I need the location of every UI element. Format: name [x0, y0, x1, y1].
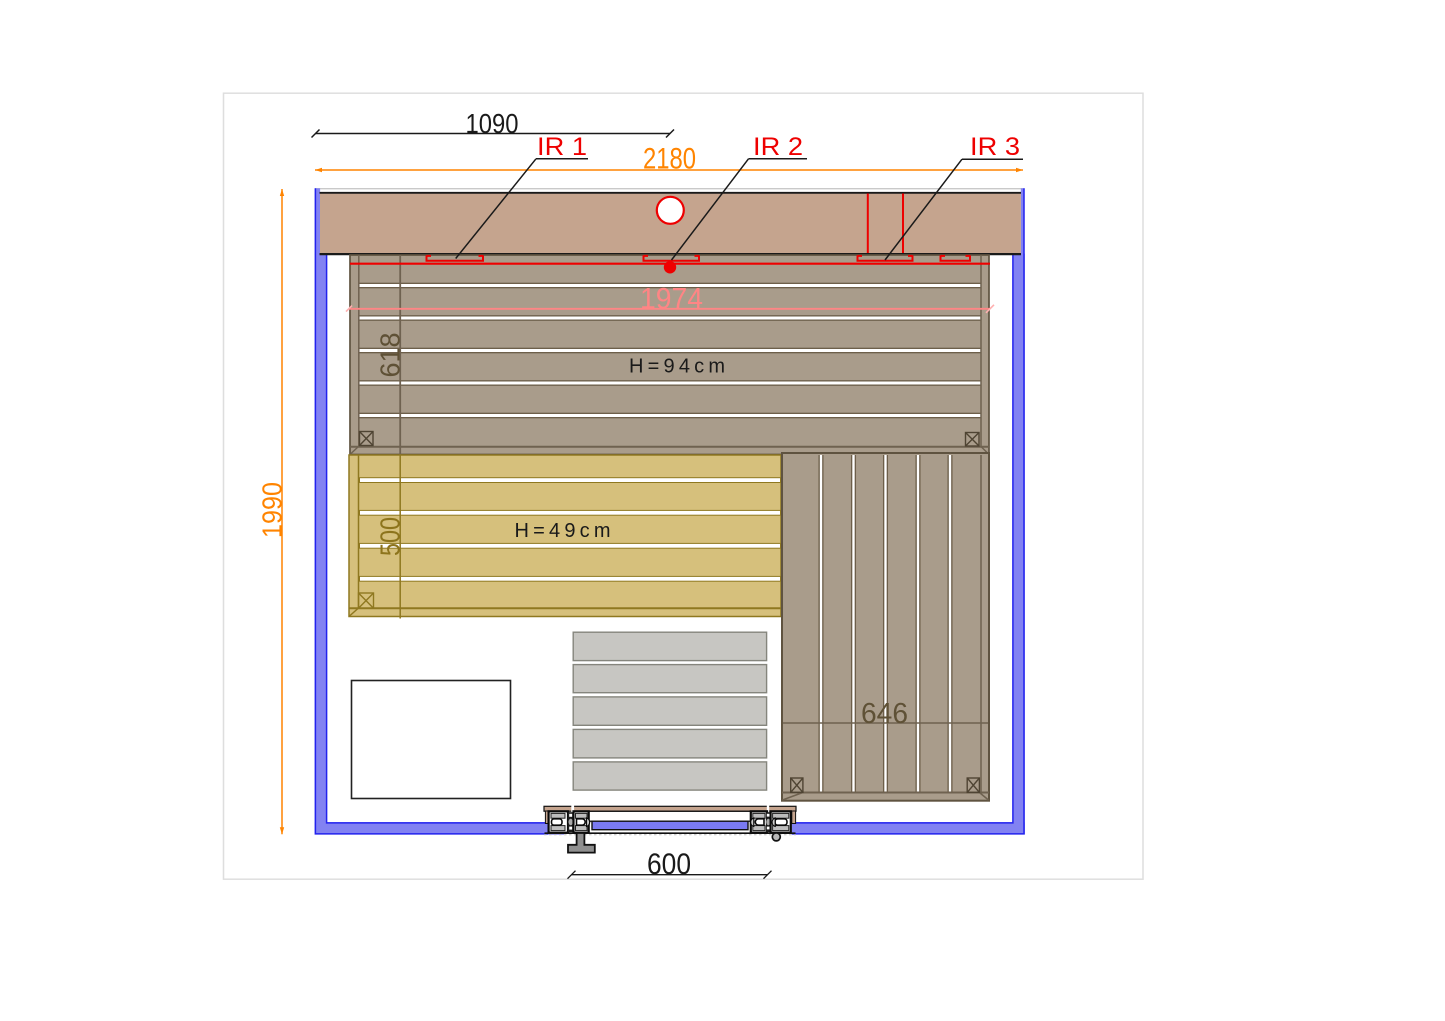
svg-text:IR 1: IR 1 [537, 133, 587, 161]
svg-text:IR 2: IR 2 [753, 133, 803, 161]
svg-text:600: 600 [647, 848, 691, 881]
svg-text:646: 646 [861, 698, 908, 730]
svg-text:1090: 1090 [466, 108, 519, 139]
svg-text:2180: 2180 [643, 143, 696, 176]
svg-text:1974: 1974 [640, 283, 703, 316]
svg-text:IR 3: IR 3 [970, 133, 1020, 161]
svg-text:1990: 1990 [257, 482, 288, 538]
svg-text:500: 500 [374, 517, 405, 556]
svg-text:618: 618 [374, 333, 405, 378]
